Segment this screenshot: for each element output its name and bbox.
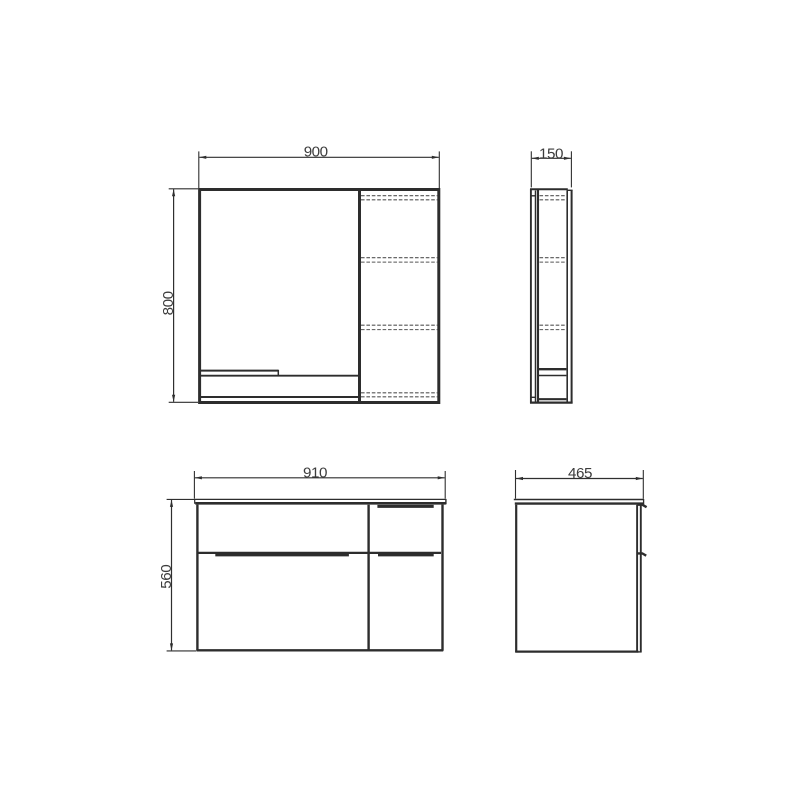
svg-text:910: 910 [303, 465, 327, 482]
svg-text:150: 150 [539, 145, 563, 162]
svg-text:900: 900 [304, 143, 328, 160]
svg-text:465: 465 [568, 465, 592, 482]
svg-text:560: 560 [158, 565, 175, 589]
svg-text:800: 800 [160, 291, 177, 315]
